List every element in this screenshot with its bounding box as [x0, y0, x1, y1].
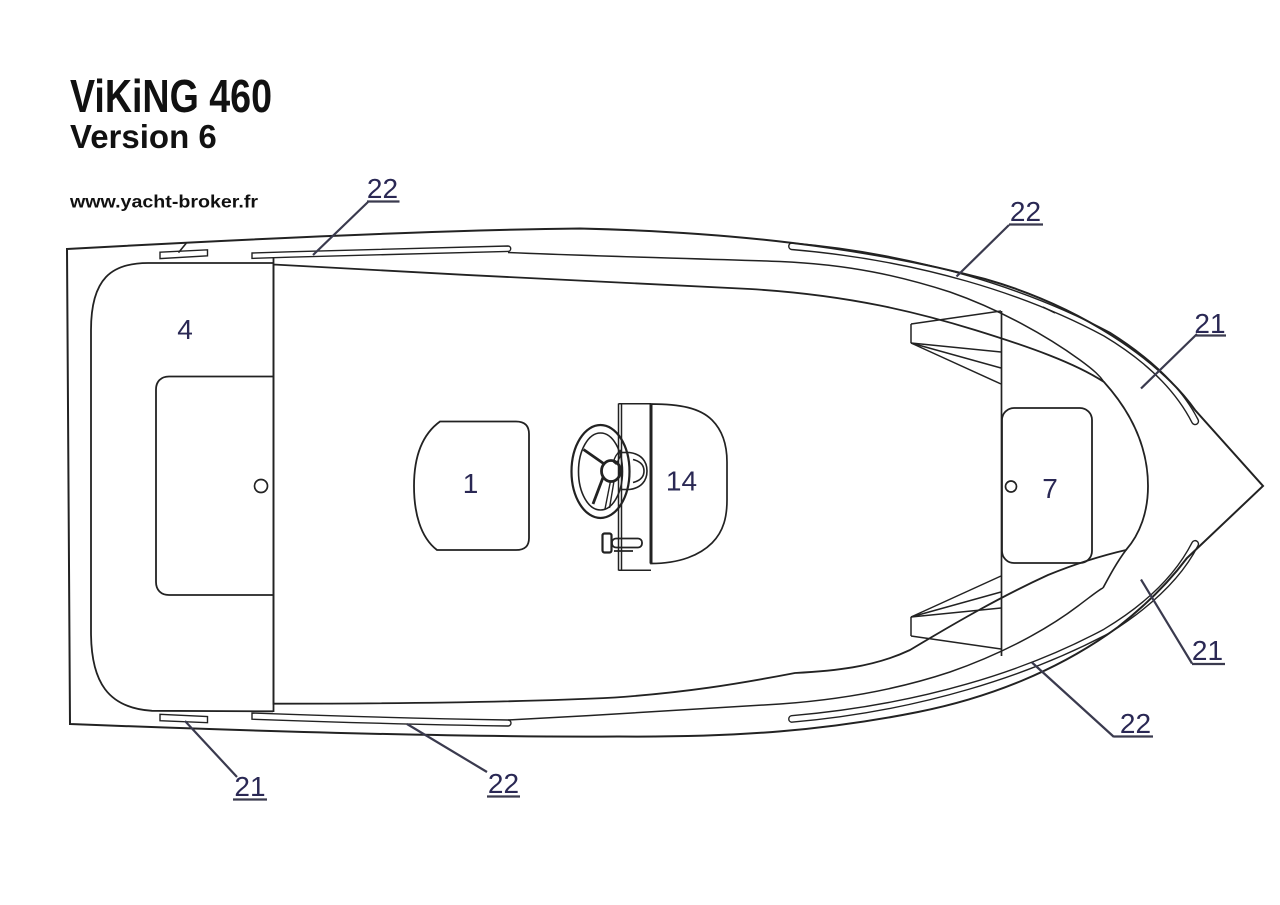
svg-text:Version 6: Version 6 — [70, 118, 217, 155]
svg-text:www.yacht-broker.fr: www.yacht-broker.fr — [69, 192, 258, 212]
svg-text:ViKiNG 460: ViKiNG 460 — [70, 70, 272, 122]
svg-text:7: 7 — [1042, 473, 1058, 504]
svg-text:22: 22 — [1120, 708, 1151, 739]
svg-text:4: 4 — [177, 314, 193, 345]
svg-text:1: 1 — [463, 468, 479, 499]
svg-text:22: 22 — [367, 173, 398, 204]
svg-text:21: 21 — [1192, 635, 1223, 666]
svg-text:22: 22 — [488, 768, 519, 799]
svg-text:22: 22 — [1010, 196, 1041, 227]
svg-text:14: 14 — [666, 466, 697, 497]
svg-text:21: 21 — [1194, 308, 1225, 339]
svg-text:21: 21 — [234, 771, 265, 802]
